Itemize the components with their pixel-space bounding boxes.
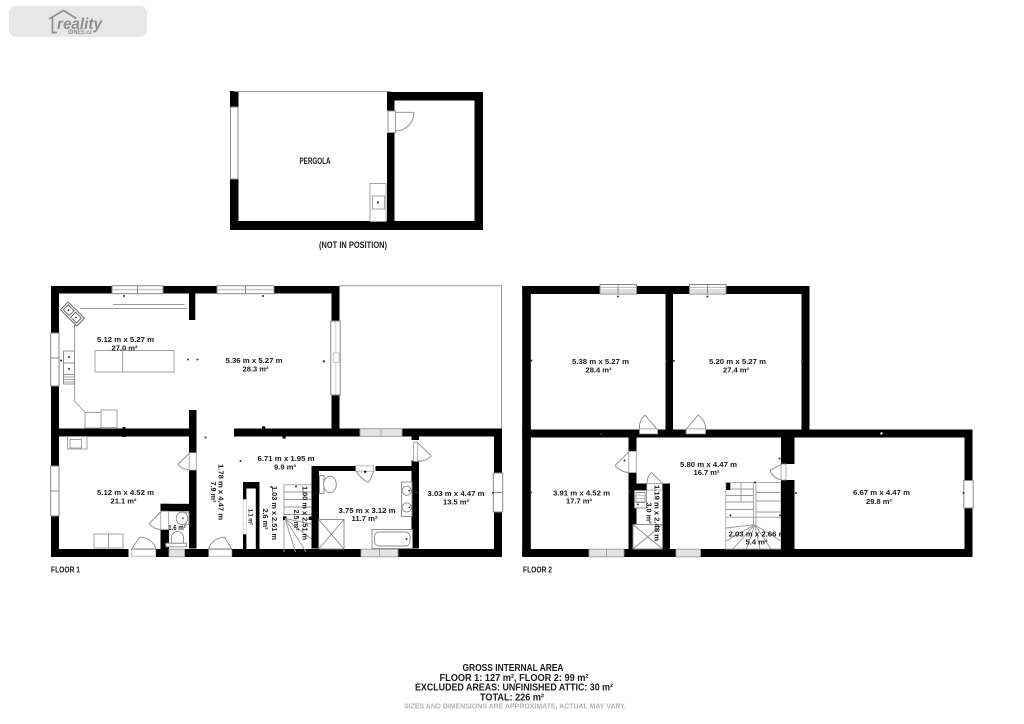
svg-text:PERGOLA: PERGOLA <box>300 156 331 166</box>
svg-text:5.4 m²: 5.4 m² <box>746 538 768 547</box>
svg-text:11.7 m²: 11.7 m² <box>352 514 379 523</box>
svg-text:21.1 m²: 21.1 m² <box>111 497 137 506</box>
svg-text:1.6 m²: 1.6 m² <box>168 523 186 532</box>
svg-text:28.3 m²: 28.3 m² <box>243 365 269 374</box>
svg-text:16.7 m²: 16.7 m² <box>694 468 720 477</box>
svg-text:2.5 m²: 2.5 m² <box>292 510 301 532</box>
svg-text:FLOOR 2: FLOOR 2 <box>523 565 552 575</box>
svg-text:SIZES AND DIMENSIONS ARE APPRO: SIZES AND DIMENSIONS ARE APPROXIMATE, AC… <box>404 704 626 711</box>
svg-text:2.6 m²: 2.6 m² <box>261 509 270 531</box>
svg-text:(NOT IN POSITION): (NOT IN POSITION) <box>319 240 387 250</box>
svg-text:iDNES.cz: iDNES.cz <box>68 30 92 36</box>
svg-text:6.67 m x 4.47 m: 6.67 m x 4.47 m <box>853 488 910 497</box>
svg-text:FLOOR 1: FLOOR 1 <box>51 565 80 575</box>
svg-text:9.9 m²: 9.9 m² <box>274 463 296 472</box>
svg-text:17.7 m²: 17.7 m² <box>566 497 592 506</box>
svg-text:27.4 m²: 27.4 m² <box>723 366 749 375</box>
svg-text:1.03 m x 2.51 m: 1.03 m x 2.51 m <box>270 486 279 540</box>
svg-text:29.8 m²: 29.8 m² <box>866 497 892 506</box>
svg-text:1.1 m²: 1.1 m² <box>246 509 253 526</box>
svg-text:7.9 m²: 7.9 m² <box>209 482 218 504</box>
svg-text:TOTAL: 226 m²: TOTAL: 226 m² <box>480 693 545 704</box>
svg-text:3.0 m²: 3.0 m² <box>645 503 654 525</box>
svg-text:13.5 m²: 13.5 m² <box>443 498 469 507</box>
svg-text:27.0 m²: 27.0 m² <box>112 344 138 353</box>
svg-text:28.4 m²: 28.4 m² <box>586 366 612 375</box>
